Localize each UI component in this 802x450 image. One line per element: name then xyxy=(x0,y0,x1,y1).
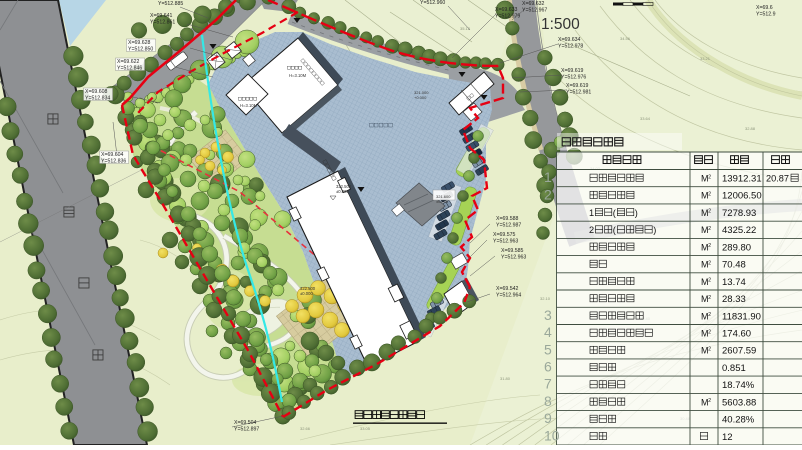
svg-text:2: 2 xyxy=(544,186,552,202)
svg-text:X=69.585: X=69.585 xyxy=(501,248,523,254)
svg-text:Y=512.963: Y=512.963 xyxy=(501,254,526,260)
svg-text:6: 6 xyxy=(544,359,552,375)
svg-text:7: 7 xyxy=(544,376,552,392)
svg-text:X=69.641: X=69.641 xyxy=(150,13,172,19)
svg-text:Y=512.846: Y=512.846 xyxy=(117,65,142,71)
svg-text:2: 2 xyxy=(589,225,594,235)
svg-text:2: 2 xyxy=(708,243,711,249)
svg-text:): ) xyxy=(635,208,638,218)
svg-text:10: 10 xyxy=(544,427,560,443)
svg-text:35.12: 35.12 xyxy=(460,26,471,31)
svg-text:1: 1 xyxy=(544,169,552,185)
svg-text:0.851: 0.851 xyxy=(722,363,746,374)
svg-text:1:500: 1:500 xyxy=(541,16,580,33)
svg-text:1: 1 xyxy=(589,208,594,218)
svg-text:4: 4 xyxy=(544,324,552,340)
svg-text:X=69.542: X=69.542 xyxy=(496,286,518,292)
svg-text:Y=512.978: Y=512.978 xyxy=(558,43,583,49)
svg-text:2607.59: 2607.59 xyxy=(722,346,756,357)
svg-text:Y=512.964: Y=512.964 xyxy=(496,292,521,298)
svg-text:2: 2 xyxy=(708,192,711,198)
svg-text:+0.000: +0.000 xyxy=(414,95,427,100)
svg-text:34.56: 34.56 xyxy=(620,36,631,41)
svg-text:H=3.10M: H=3.10M xyxy=(240,103,258,108)
svg-text:Y=512.861: Y=512.861 xyxy=(150,19,175,25)
svg-text:289.80: 289.80 xyxy=(722,242,751,253)
svg-text:(: ( xyxy=(613,208,616,218)
svg-text:2: 2 xyxy=(708,295,711,301)
svg-text:(: ( xyxy=(613,225,616,235)
svg-text:9: 9 xyxy=(544,410,552,426)
svg-text:X=69.588: X=69.588 xyxy=(496,216,518,222)
svg-text:2: 2 xyxy=(708,260,711,266)
svg-text:32.88: 32.88 xyxy=(745,126,756,131)
svg-text:70.48: 70.48 xyxy=(722,260,746,271)
svg-text:33.05: 33.05 xyxy=(360,426,371,431)
svg-text:5: 5 xyxy=(544,341,552,357)
svg-text:174.60: 174.60 xyxy=(722,329,751,340)
svg-text:2: 2 xyxy=(708,329,711,335)
svg-text:Y=512.987: Y=512.987 xyxy=(496,222,521,228)
svg-text:±0.000: ±0.000 xyxy=(336,189,349,194)
svg-text:33.64: 33.64 xyxy=(640,116,651,121)
svg-text:3: 3 xyxy=(544,307,552,323)
svg-text:33.21: 33.21 xyxy=(700,56,711,61)
svg-text:13.74: 13.74 xyxy=(722,277,746,288)
svg-text:2: 2 xyxy=(708,312,711,318)
svg-text:Y=512.885: Y=512.885 xyxy=(158,1,183,7)
svg-text:40.28%: 40.28% xyxy=(722,415,755,426)
svg-text:5603.88: 5603.88 xyxy=(722,397,756,408)
svg-text:Y=512.963: Y=512.963 xyxy=(493,238,518,244)
svg-text:X=69.632: X=69.632 xyxy=(522,1,544,7)
svg-text:13912.31: 13912.31 xyxy=(722,174,762,185)
svg-text:7278.93: 7278.93 xyxy=(722,208,756,219)
svg-text:X=69.622: X=69.622 xyxy=(117,59,139,65)
svg-text:Y=512.836: Y=512.836 xyxy=(101,158,126,164)
svg-text:Y=512.979: Y=512.979 xyxy=(495,13,520,19)
svg-text:Y=512.9: Y=512.9 xyxy=(756,11,776,17)
svg-text:4325.22: 4325.22 xyxy=(722,225,756,236)
svg-text:8: 8 xyxy=(544,393,552,409)
svg-text:31.80: 31.80 xyxy=(500,376,511,381)
svg-text:X=69.6: X=69.6 xyxy=(756,5,773,11)
svg-text:11831.90: 11831.90 xyxy=(722,311,761,322)
svg-text:2: 2 xyxy=(708,209,711,215)
svg-text:12: 12 xyxy=(722,432,733,443)
svg-text:2: 2 xyxy=(708,278,711,284)
svg-text:H=3.10M: H=3.10M xyxy=(289,73,307,78)
svg-text:28.33: 28.33 xyxy=(722,294,746,305)
svg-text:Y=512.967: Y=512.967 xyxy=(522,7,547,13)
svg-text:X=69.504: X=69.504 xyxy=(234,420,256,426)
svg-text:2: 2 xyxy=(708,174,711,180)
svg-text:±0.000: ±0.000 xyxy=(300,291,313,296)
svg-text:X=69.628: X=69.628 xyxy=(128,40,150,46)
svg-text:Y=512.960: Y=512.960 xyxy=(420,0,445,6)
svg-text:Y=512.981: Y=512.981 xyxy=(566,89,591,95)
svg-text:X=69.608: X=69.608 xyxy=(85,89,107,95)
svg-text:12006.50: 12006.50 xyxy=(722,191,762,202)
svg-text:X=69.633: X=69.633 xyxy=(495,7,517,13)
svg-text:X=69.604: X=69.604 xyxy=(101,152,123,158)
svg-text:X=69.619: X=69.619 xyxy=(561,68,583,74)
svg-text:X=69.619: X=69.619 xyxy=(566,83,588,89)
svg-text:Y=512.897: Y=512.897 xyxy=(234,426,259,432)
svg-text:X=69.575: X=69.575 xyxy=(493,232,515,238)
svg-text:32.66: 32.66 xyxy=(300,426,311,431)
svg-text:Y=512.850: Y=512.850 xyxy=(128,46,153,52)
svg-text:Y=512.834: Y=512.834 xyxy=(85,95,110,101)
svg-text:Y=512.976: Y=512.976 xyxy=(561,74,586,80)
svg-text:32.10: 32.10 xyxy=(540,296,551,301)
svg-text:): ) xyxy=(653,225,656,235)
svg-text:20.87: 20.87 xyxy=(766,174,789,184)
svg-text:2: 2 xyxy=(708,226,711,232)
svg-text:X=69.634: X=69.634 xyxy=(558,37,580,43)
svg-text:18.74%: 18.74% xyxy=(722,380,755,391)
svg-text:2: 2 xyxy=(708,347,711,353)
svg-text:±0.000: ±0.000 xyxy=(436,199,449,204)
svg-text:2: 2 xyxy=(708,398,711,404)
